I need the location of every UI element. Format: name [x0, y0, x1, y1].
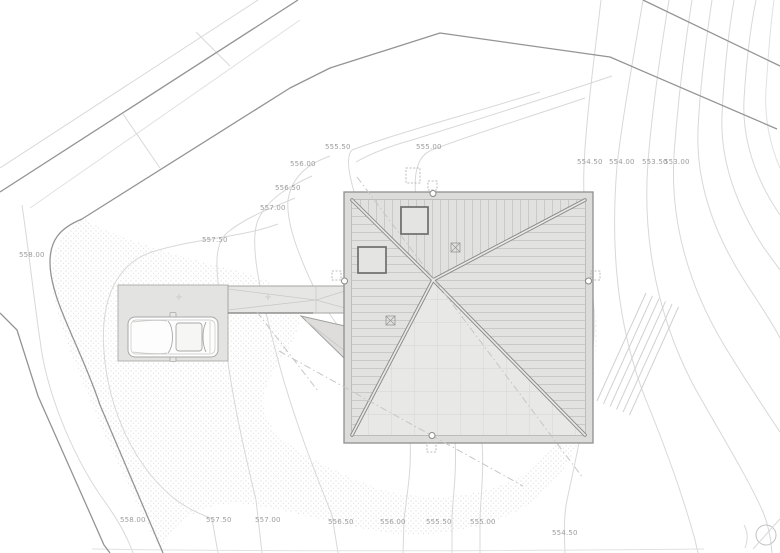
- entry-wedge: [301, 316, 345, 359]
- walkway-ramp: [228, 286, 345, 313]
- skylight: [401, 207, 428, 234]
- car-top-view: [128, 313, 218, 362]
- building-roof: [344, 192, 593, 443]
- site-plan: 555.50555.00554.50554.00553.50553.00556.…: [0, 0, 780, 553]
- edge-marker-east: [586, 278, 592, 284]
- site-plan-drawing: [0, 0, 780, 553]
- edge-marker-west: [342, 278, 348, 284]
- edge-marker-north: [430, 191, 436, 197]
- edge-marker-south: [429, 433, 435, 439]
- terraced-steps: [597, 293, 679, 415]
- survey-circle-symbol: [744, 519, 780, 549]
- skylight: [358, 247, 386, 273]
